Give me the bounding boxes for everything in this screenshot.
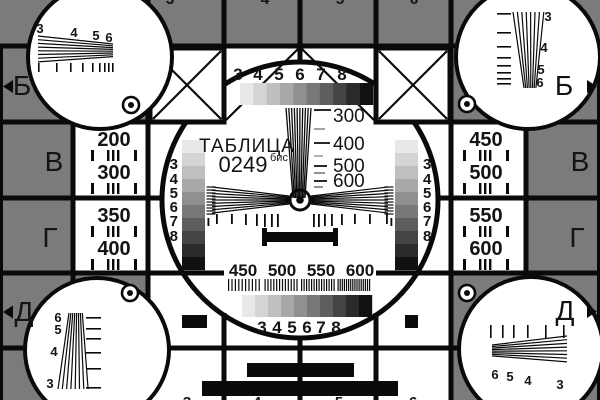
row-letter-g-right: Г — [569, 222, 584, 253]
row-letter-v-left: В — [45, 146, 64, 177]
svg-text:400: 400 — [333, 134, 365, 155]
black-square-right — [405, 315, 418, 328]
row-letter-b-right: Б — [555, 70, 573, 101]
row-letter-b-left: Б — [13, 70, 31, 101]
center-wedge-labels: 300 400 500 600 — [333, 106, 365, 192]
svg-text:550: 550 — [307, 261, 335, 280]
svg-text:450: 450 — [469, 129, 502, 151]
tv-test-card: ТАБЛИЦА 0249 бис 3 4 5 6 7 8 3 4 5 6 7 8… — [0, 0, 600, 400]
svg-text:600: 600 — [469, 238, 502, 260]
svg-text:4: 4 — [253, 65, 263, 84]
svg-text:4: 4 — [540, 40, 548, 55]
svg-text:4: 4 — [524, 373, 532, 388]
svg-text:5: 5 — [336, 0, 344, 8]
svg-text:5: 5 — [274, 65, 283, 84]
svg-text:7: 7 — [316, 65, 325, 84]
staircase-numbers-left: 3 4 5 6 7 8 — [170, 156, 179, 245]
svg-text:3: 3 — [183, 394, 191, 400]
svg-text:3: 3 — [556, 377, 563, 392]
bottom-bar-short — [247, 363, 354, 377]
svg-text:500: 500 — [469, 162, 502, 184]
grayscale-bar-bottom — [242, 295, 372, 317]
card-number-suffix: бис — [270, 152, 288, 164]
bullseye-bottom-left-icon — [122, 285, 138, 301]
svg-text:200: 200 — [97, 129, 130, 151]
svg-text:5: 5 — [54, 322, 61, 337]
svg-text:8: 8 — [337, 65, 346, 84]
svg-text:4: 4 — [261, 0, 270, 8]
black-rect-left — [182, 315, 207, 328]
svg-text:8: 8 — [423, 228, 431, 245]
staircase-numbers-right: 3 4 5 6 7 8 — [423, 156, 432, 245]
test-card-svg: ТАБЛИЦА 0249 бис 3 4 5 6 7 8 3 4 5 6 7 8… — [0, 0, 600, 400]
svg-text:6: 6 — [491, 367, 498, 382]
x-box-top-right — [376, 48, 450, 122]
grayscale-bar-top — [240, 83, 373, 105]
svg-text:600: 600 — [333, 171, 365, 192]
grayscale-staircase-left — [182, 140, 205, 270]
svg-text:300: 300 — [97, 162, 130, 184]
svg-text:600: 600 — [346, 261, 374, 280]
svg-text:5: 5 — [287, 318, 296, 337]
svg-text:6: 6 — [295, 65, 304, 84]
svg-text:4: 4 — [272, 318, 282, 337]
svg-text:4: 4 — [70, 25, 78, 40]
svg-text:550: 550 — [469, 205, 502, 227]
svg-text:6: 6 — [409, 394, 417, 400]
svg-text:3: 3 — [233, 65, 242, 84]
svg-text:5: 5 — [335, 394, 343, 400]
bullseye-top-right-icon — [459, 96, 475, 112]
svg-text:6: 6 — [410, 0, 418, 8]
bullseye-top-left-icon — [123, 97, 139, 113]
row-letter-d-left: Д — [15, 296, 34, 327]
svg-text:4: 4 — [253, 394, 262, 400]
svg-text:300: 300 — [333, 106, 365, 127]
svg-text:8: 8 — [331, 318, 340, 337]
svg-text:3: 3 — [166, 0, 174, 8]
row-letter-g-left: Г — [42, 222, 57, 253]
card-number: 0249 — [219, 152, 268, 177]
svg-text:6: 6 — [536, 75, 543, 90]
svg-text:3: 3 — [257, 318, 266, 337]
svg-text:3: 3 — [544, 9, 551, 24]
grayscale-staircase-right — [395, 140, 418, 270]
svg-text:6: 6 — [302, 318, 311, 337]
svg-text:400: 400 — [97, 238, 130, 260]
svg-text:500: 500 — [268, 261, 296, 280]
svg-text:8: 8 — [170, 228, 178, 245]
svg-text:5: 5 — [506, 369, 513, 384]
svg-text:3: 3 — [46, 376, 53, 391]
svg-text:450: 450 — [229, 261, 257, 280]
svg-text:5: 5 — [92, 28, 99, 43]
svg-text:6: 6 — [105, 30, 112, 45]
row-letter-d-right: Д — [556, 295, 575, 326]
bottom-bar-long — [202, 381, 398, 396]
svg-text:3: 3 — [36, 21, 43, 36]
svg-text:4: 4 — [50, 344, 58, 359]
svg-text:7: 7 — [316, 318, 325, 337]
svg-text:350: 350 — [97, 205, 130, 227]
ibeam-bar — [265, 232, 335, 242]
bullseye-bottom-right-icon — [459, 285, 475, 301]
row-letter-v-right: В — [571, 146, 590, 177]
